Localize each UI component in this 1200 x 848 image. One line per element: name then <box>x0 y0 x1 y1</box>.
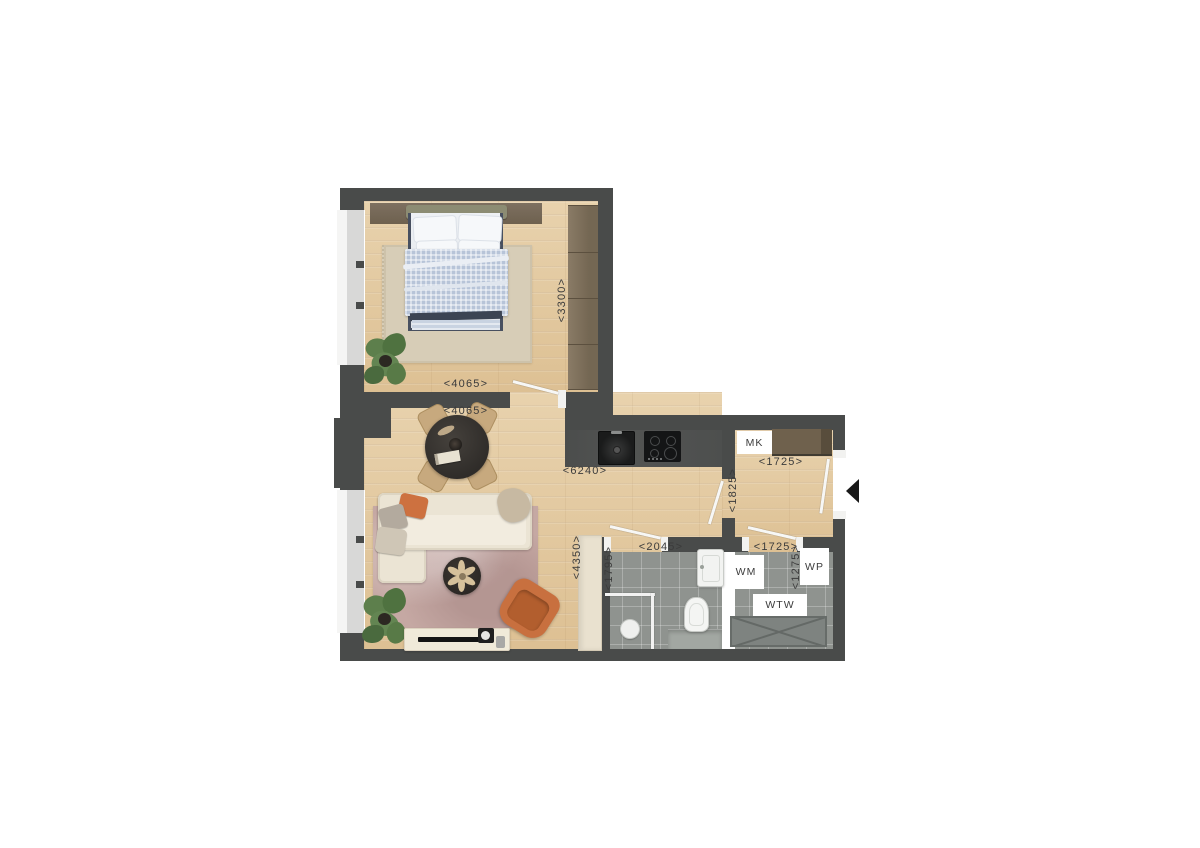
wardrobe-shelf-line <box>568 344 598 345</box>
living-window-mullion <box>356 581 364 588</box>
table-book <box>434 450 461 465</box>
bed-foot-fold <box>412 320 500 330</box>
kitchen-sink <box>598 431 635 465</box>
wardrobe-shelf-line <box>568 298 598 299</box>
dim-bathroom-depth: <1795> <box>602 523 616 613</box>
entrance-doorway <box>833 457 845 513</box>
bedroom-window-frame <box>337 210 347 365</box>
wall-top-bedroom <box>340 188 613 201</box>
dim-bedroom-width: <4065> <box>421 377 511 391</box>
living-window-frame <box>337 490 347 633</box>
burner <box>664 447 677 460</box>
dim-utility-width: <1725> <box>731 540 821 554</box>
wall-rightwing-top <box>598 415 845 430</box>
bedroom-window <box>347 210 365 365</box>
dim-living-kitchen-length: <6240> <box>540 464 630 478</box>
shower-drain <box>620 619 640 639</box>
burner <box>666 436 676 446</box>
coffee-table <box>443 557 481 595</box>
shower-partition-vertical <box>651 593 654 649</box>
toilet <box>684 597 709 632</box>
table-plant-sprig <box>436 424 455 438</box>
dim-hall-width: <1725> <box>736 455 826 469</box>
flower-center <box>459 573 466 580</box>
bed <box>408 205 503 331</box>
wall-pier-living <box>364 408 391 438</box>
bedroom-plant <box>364 334 408 386</box>
bedroom-door-jamb <box>558 390 566 408</box>
plant-pot <box>378 613 391 625</box>
wall-kitchen-corner-block <box>565 392 613 430</box>
wardrobe-shelf-line <box>568 252 598 253</box>
dim-bedroom-depth: <3300> <box>555 255 569 345</box>
living-window-mullion <box>356 536 364 543</box>
wardrobe <box>568 205 598 390</box>
meter-cupboard <box>772 429 832 456</box>
washing-machine-label: WM <box>728 555 764 589</box>
toilet-cistern-block <box>668 629 722 649</box>
burner <box>650 436 660 446</box>
floor-plan: MK WM WP WTW <4065> <4065> <3300> <6240>… <box>0 0 1200 848</box>
faucet-icon <box>611 431 622 434</box>
bedroom-window-mullion <box>356 302 364 309</box>
washbasin-tap-icon <box>700 565 704 569</box>
stove-knobs <box>648 458 662 460</box>
dim-bathroom-width: <2045> <box>616 540 706 554</box>
shaft <box>730 616 827 647</box>
entrance-arrow-icon <box>846 479 859 503</box>
dim-living-depth: <4350> <box>570 512 584 602</box>
media-console-box <box>478 628 494 643</box>
meter-cupboard-label: MK <box>737 431 772 454</box>
burner <box>650 449 659 458</box>
wm-text: WM <box>736 566 757 578</box>
table-vase <box>449 438 462 451</box>
living-plant <box>362 589 408 645</box>
dining-table <box>425 415 489 479</box>
plant-leaves <box>362 625 384 643</box>
kitchen-stove <box>644 431 681 462</box>
console-disc <box>481 631 490 640</box>
wall-left-pilaster <box>334 418 342 488</box>
entrance-door-jamb <box>833 450 846 458</box>
entrance-door-jamb <box>833 511 846 519</box>
plant-pot <box>379 355 392 367</box>
washbasin-bowl <box>702 555 720 582</box>
sink-drain <box>613 446 621 454</box>
wp-text: WP <box>805 561 824 573</box>
sofa-cushion-taupe <box>374 526 407 556</box>
speaker <box>496 636 505 648</box>
dim-utility-depth: <1275> <box>789 522 803 612</box>
dim-living-width: <4065> <box>421 404 511 418</box>
mk-text: MK <box>746 437 764 449</box>
plant-leaves <box>364 366 384 384</box>
toilet-seat-line <box>689 603 704 626</box>
washbasin <box>697 549 724 587</box>
bedroom-window-mullion <box>356 261 364 268</box>
